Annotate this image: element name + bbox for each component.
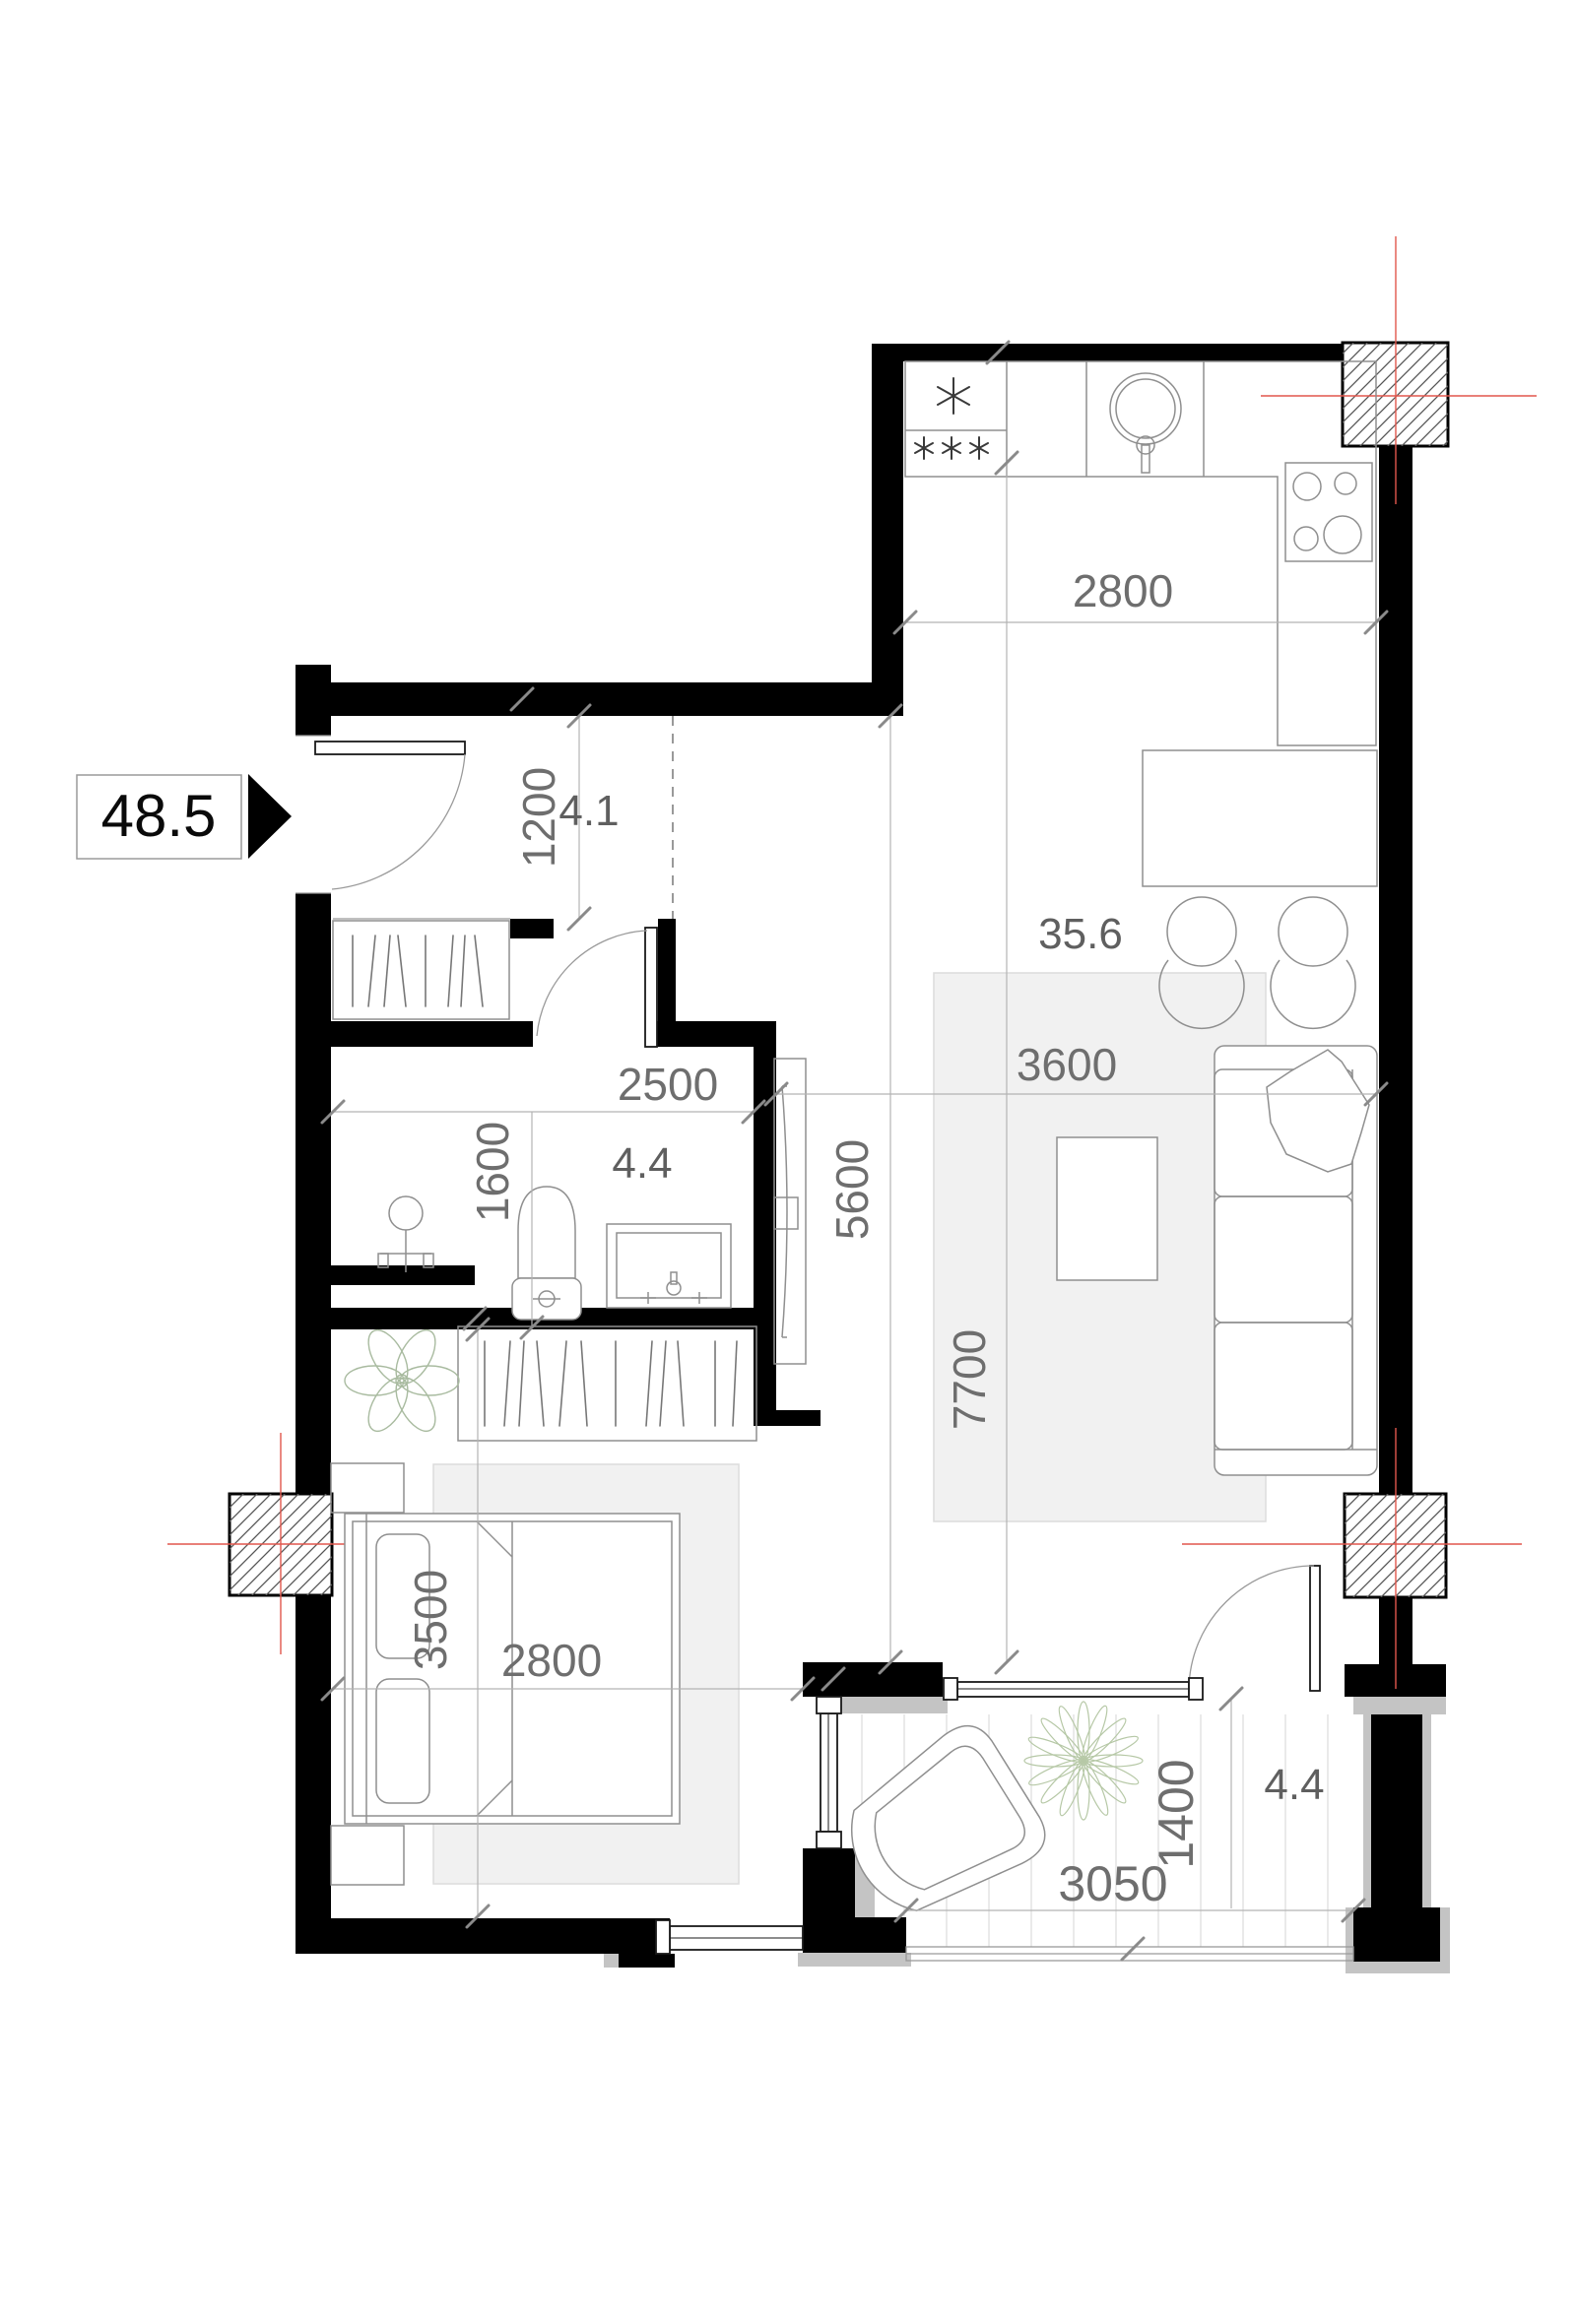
toilet-icon (512, 1187, 581, 1320)
dim-bedroom-length: 3500 (405, 1570, 456, 1670)
room-label-hallway: 4.1 (558, 787, 619, 835)
balcony-top-glazing (944, 1678, 1203, 1700)
bathroom-fixtures (378, 1187, 731, 1320)
tv-screen (782, 1086, 787, 1337)
sofa (1215, 1046, 1377, 1475)
coffee-table (1057, 1137, 1157, 1280)
bathroom-door-swing (537, 931, 647, 1036)
tv-unit (774, 1059, 806, 1364)
dim-bathroom-width: 2500 (618, 1059, 718, 1110)
dim-living-width: 3600 (1017, 1039, 1117, 1090)
nightstand (331, 1826, 404, 1885)
freezer-icon (915, 437, 988, 459)
nightstand (331, 1463, 404, 1513)
dim-bedroom-width: 2800 (501, 1635, 602, 1686)
floor-plan-page: 2800 1200 2500 1600 3600 5600 7700 2800 … (0, 0, 1576, 2324)
plant-icon (345, 1323, 459, 1437)
total-area-value: 48.5 (101, 783, 217, 849)
bathroom-door-leaf (645, 928, 657, 1047)
dining-chair (1271, 897, 1355, 1028)
room-label-bathroom: 4.4 (612, 1139, 672, 1188)
entrance-door-leaf (315, 742, 465, 754)
balcony-door-leaf (1310, 1566, 1320, 1691)
bed-pillow (376, 1679, 429, 1803)
bathroom-door (537, 928, 657, 1047)
plant-icon (1024, 1702, 1143, 1820)
entrance-door-swing (332, 754, 465, 889)
kitchen-counter (905, 361, 1376, 745)
entrance-door (315, 742, 465, 889)
balcony-door (1189, 1566, 1320, 1691)
stove-icon (1285, 463, 1372, 561)
fridge-icon (938, 378, 969, 414)
towel-stand-icon (378, 1196, 433, 1272)
kitchen-sink-icon (1110, 373, 1181, 473)
dim-bathroom-depth: 1600 (467, 1122, 518, 1222)
balcony-side-window (817, 1697, 841, 1848)
dim-total-length: 7700 (944, 1329, 995, 1430)
room-label-living: 35.6 (1038, 910, 1123, 958)
room-label-balcony: 4.4 (1264, 1761, 1324, 1809)
dim-balcony-depth: 1400 (1149, 1759, 1204, 1868)
floor-plan-drawing: 2800 1200 2500 1600 3600 5600 7700 2800 … (0, 0, 1576, 2324)
dim-hallway-depth: 1200 (513, 767, 564, 868)
bedroom-window (656, 1920, 803, 1954)
bathroom-sink-icon (607, 1224, 731, 1308)
dim-kitchen-width: 2800 (1073, 565, 1173, 616)
balcony-door-swing (1189, 1566, 1314, 1689)
dining-table (1143, 750, 1377, 886)
total-area-badge: 48.5 (77, 774, 292, 859)
hall-closet (333, 921, 509, 1019)
dim-living-length: 5600 (826, 1139, 878, 1240)
kitchen (905, 361, 1376, 745)
entrance-arrow-icon (248, 774, 292, 859)
wardrobe (458, 1326, 756, 1441)
